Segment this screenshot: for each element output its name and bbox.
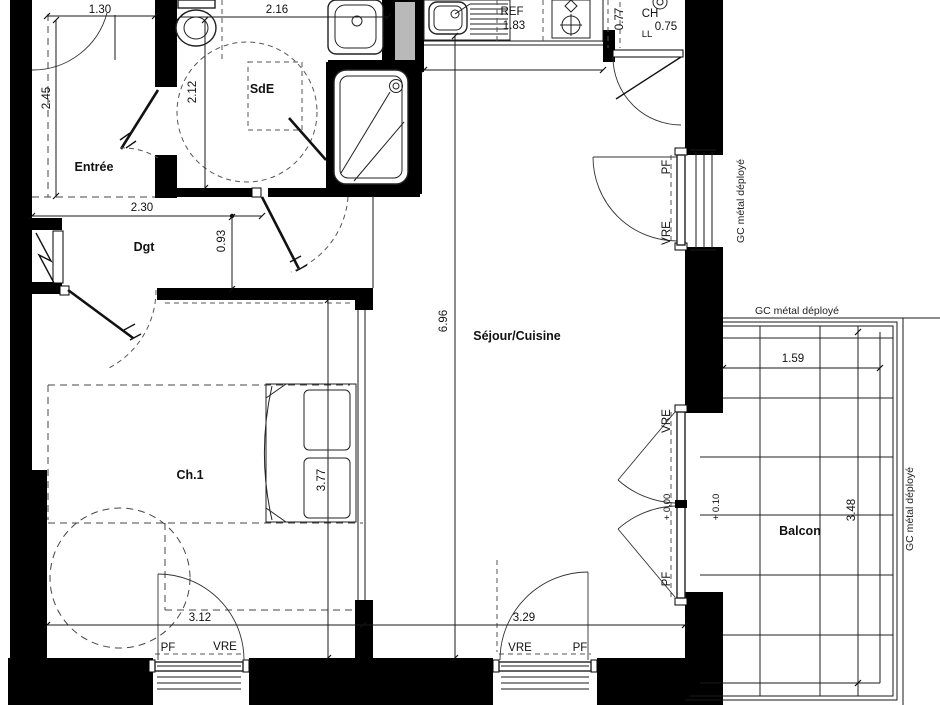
sejour-right-window [593, 148, 716, 250]
floor-plan-page: Entrée SdE Dgt Ch.1 Séjour/Cuisine Balco… [0, 0, 940, 705]
railing-label-balcony: GC métal déployé [904, 467, 916, 551]
dim-closet-width: 0.75 [655, 21, 677, 33]
dim-sde-width: 2.16 [266, 4, 288, 16]
level-interior: + 0.00 [662, 494, 673, 521]
dim-ch1-width: 3.12 [189, 612, 211, 624]
bed [265, 384, 357, 522]
sde-door-leaf [262, 197, 299, 269]
entry-door-swing-symbol [36, 233, 54, 283]
balcony-zone [685, 318, 940, 705]
dim-balcon-width: 1.59 [782, 353, 804, 365]
french-door-pf-label: PF [661, 572, 673, 587]
entree-door-leaf [121, 90, 158, 149]
dim-balcon-height: 3.48 [846, 499, 858, 521]
ch1-window-pf-label: PF [161, 642, 176, 654]
shower [326, 62, 422, 194]
washer-label: LL [642, 29, 653, 40]
stove [552, 0, 590, 38]
dim-sde-height: 2.12 [187, 81, 199, 103]
ch1-zone [48, 286, 363, 648]
room-label-ch1: Ch.1 [176, 468, 203, 482]
level-balcony: + 0.10 [711, 494, 722, 521]
dim-kitchen-width: 1.83 [503, 20, 525, 32]
toilet [176, 0, 216, 46]
entry-door-frame [53, 231, 63, 283]
room-label-entree: Entrée [75, 160, 114, 174]
sejour-window-pf-label: PF [573, 642, 588, 654]
labels: Entrée SdE Dgt Ch.1 Séjour/Cuisine Balco… [41, 4, 916, 654]
railing-label-top: GC métal déployé [755, 305, 839, 317]
railing-label-window: GC métal déployé [735, 159, 747, 243]
room-label-dgt: Dgt [134, 240, 156, 254]
dim-closet-niche: 0.77 [614, 8, 626, 30]
floor-plan-canvas: Entrée SdE Dgt Ch.1 Séjour/Cuisine Balco… [0, 0, 940, 705]
dimension-lines [29, 13, 883, 686]
closet-door-frame [613, 50, 683, 57]
sejour-window-vre-label: VRE [508, 642, 532, 654]
right-window-pf-label: PF [661, 160, 673, 175]
french-door-vre-label: VRE [661, 409, 673, 433]
dim-dgt-height: 0.93 [216, 230, 228, 252]
ch1-window-vre-label: VRE [213, 641, 237, 653]
washbasin [328, 0, 383, 54]
fridge-label: REF [501, 6, 524, 18]
closet-door-leaf [616, 57, 681, 99]
dim-entree-width: 1.30 [89, 4, 111, 16]
room-label-balcon: Balcon [779, 524, 821, 538]
dim-entree-height: 2.45 [41, 87, 53, 109]
balcony-french-door [618, 405, 687, 605]
technical-shaft [394, 1, 416, 61]
right-window-vre-label: VRE [661, 221, 673, 245]
ch1-window [149, 574, 249, 689]
water-heater-label: CH [642, 8, 659, 20]
dim-dgt-width: 2.30 [131, 202, 153, 214]
ch1-door-leaf [68, 290, 133, 338]
shower-screen [289, 118, 326, 160]
dim-ch1-height: 3.77 [316, 469, 328, 491]
dim-sejour-height: 6.96 [438, 310, 450, 332]
room-label-sde: SdE [250, 82, 274, 96]
room-label-sejour: Séjour/Cuisine [473, 329, 561, 343]
dim-sejour-width: 3.29 [513, 612, 535, 624]
